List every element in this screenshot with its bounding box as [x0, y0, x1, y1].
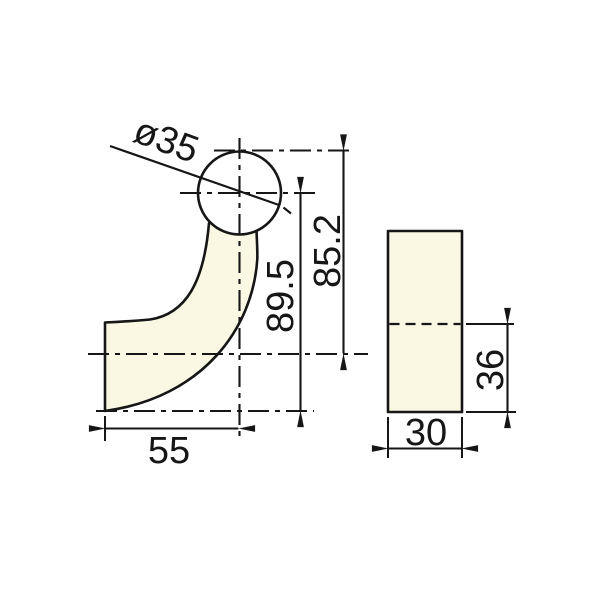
dim-label-front-width: 30: [405, 412, 447, 454]
drawing-canvas: ø35 89.5 85.2 55 36: [0, 0, 600, 600]
dim-label-lower-height: 36: [470, 349, 512, 391]
dim-label-height-center: 89.5: [260, 259, 302, 333]
front-body-outline: [388, 231, 462, 412]
dim-label-base-width: 55: [148, 430, 190, 472]
bracket-outline: [105, 221, 257, 411]
bracket-technical-drawing: ø35 89.5 85.2 55 36: [0, 0, 600, 600]
dim-label-diameter: ø35: [128, 110, 204, 172]
front-view: 36 30: [388, 231, 516, 458]
side-view: ø35 89.5 85.2 55: [88, 110, 368, 472]
diameter-leader-tick: [284, 208, 292, 214]
dim-label-height-overall: 85.2: [307, 214, 349, 288]
